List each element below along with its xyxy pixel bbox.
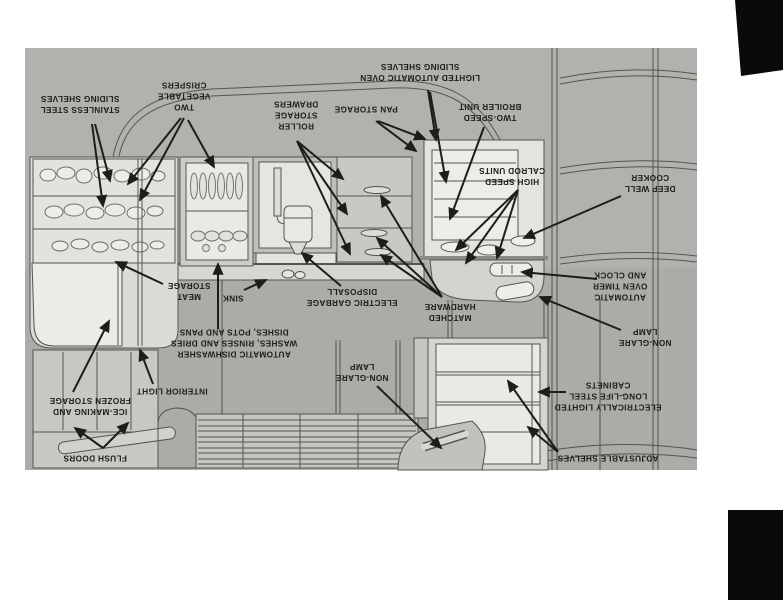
label-matched-hardware: MATCHEDHARDWARE (424, 301, 475, 323)
label-layer: STAINLESS STEELSLIDING SHELVESTWOVEGETAB… (0, 0, 783, 600)
label-ice-making-frozen-storage: ICE-MAKING ANDFROZEN STORAGE (49, 395, 131, 417)
label-two-vegetable-crispers: TWOVEGETABLECRISPERS (158, 79, 211, 112)
label-pan-storage: PAN STORAGE (334, 103, 397, 114)
scan-mark-bottom-right (728, 510, 783, 600)
label-automatic-dishwasher: AUTOMATIC DISHWASHERWASHES, RINSES AND D… (171, 326, 298, 359)
label-electric-garbage-disposall: ELECTRIC GARBAGEDISPOSALL (306, 286, 397, 308)
label-deep-well-cooker: DEEP WELLCOOKER (624, 172, 675, 194)
label-automatic-oven-timer: AUTOMATICOVEN TIMERAND CLOCK (593, 269, 648, 302)
label-high-speed-calrod-units: HIGH SPEEDCALROD UNITS (479, 165, 545, 187)
label-flush-doors: FLUSH DOORS (63, 452, 127, 463)
label-non-glare-lamp-right: NON-GLARELAMP (619, 326, 672, 348)
label-sink: SINK (222, 292, 243, 303)
label-two-speed-broiler-unit: TWO-SPEEDBROILER UNIT (459, 101, 522, 123)
label-roller-storage-drawers: ROLLERSTORAGEDRAWERS (274, 98, 319, 131)
label-meat-storage: MEATSTORAGE (168, 280, 211, 302)
label-stainless-steel-sliding-shelves: STAINLESS STEELSLIDING SHELVES (40, 93, 120, 115)
label-non-glare-lamp-bottom: NON-GLARELAMP (336, 361, 389, 383)
label-interior-light: INTERIOR LIGHT (136, 385, 207, 396)
label-adjustable-shelves: ADJUSTABLE SHELVES (557, 452, 658, 463)
label-lighted-automatic-oven: LIGHTED AUTOMATIC OVENSLIDING SHELVES (360, 61, 480, 83)
photo-scan-page: STAINLESS STEELSLIDING SHELVESTWOVEGETAB… (0, 0, 783, 600)
label-electrically-lighted-cabinets: ELECTRICALLY LIGHTEDLONG-LIFE STEELCABIN… (554, 379, 661, 412)
